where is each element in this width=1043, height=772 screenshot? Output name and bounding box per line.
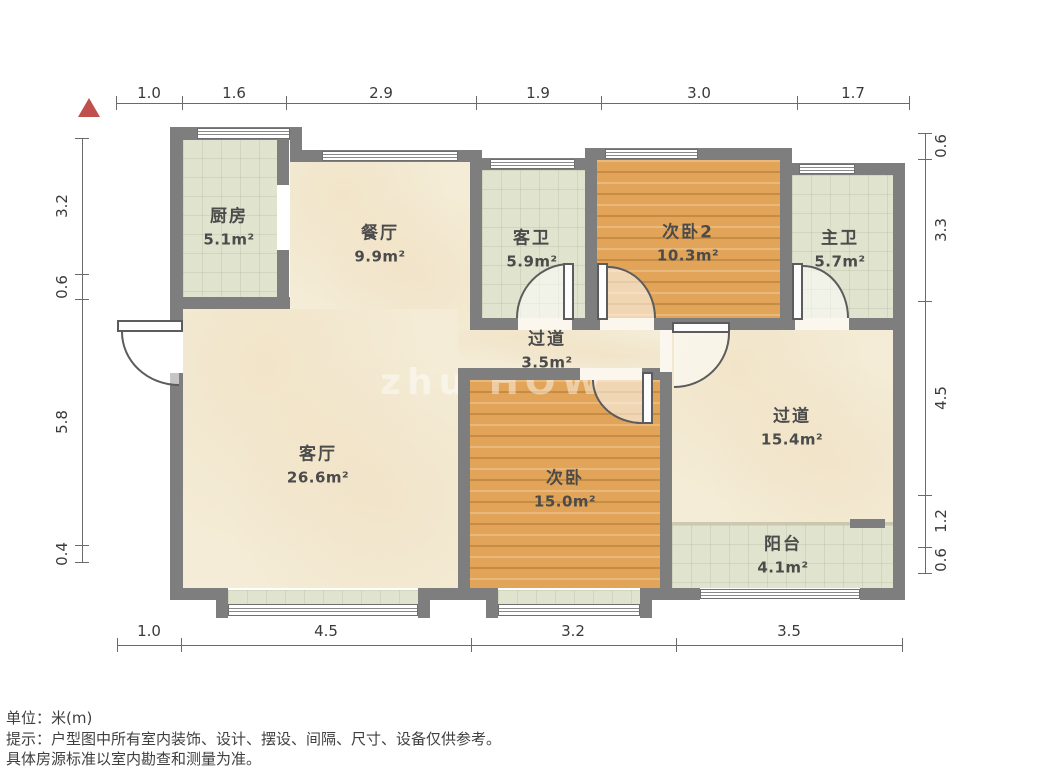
dim-label: 1.0	[137, 622, 161, 640]
master-bath-door	[792, 263, 803, 320]
master-bath-window	[799, 164, 855, 174]
room-name: 次卧2	[657, 223, 719, 244]
bay-window-stub	[418, 588, 430, 618]
dim-label: 1.7	[841, 84, 865, 102]
dim-label: 0.6	[53, 275, 71, 299]
room-name: 厨房	[203, 207, 254, 228]
room-label-bedroom: 次卧 15.0m²	[534, 469, 596, 512]
room-name: 次卧	[534, 469, 596, 490]
room-area: 4.1m²	[757, 559, 808, 578]
wall	[277, 139, 289, 185]
bedroom-door	[642, 372, 653, 424]
dim-label: 0.6	[932, 134, 950, 158]
dim-label: 4.5	[314, 622, 338, 640]
bedroom-2-door	[597, 263, 608, 320]
dim-tick	[918, 573, 932, 574]
dim-label: 3.0	[687, 84, 711, 102]
dining-window	[322, 151, 458, 161]
bay-window-stub	[640, 588, 652, 618]
bedroom-bay-window	[498, 604, 640, 616]
room-area: 5.1m²	[203, 231, 254, 250]
room-label-master-bath: 主卫 5.7m²	[814, 229, 865, 272]
wall	[585, 160, 597, 330]
dim-label: 0.6	[932, 548, 950, 572]
room-label-hallway-small: 过道 3.5m²	[521, 330, 572, 373]
dim-tick	[918, 133, 932, 134]
wall	[170, 297, 290, 309]
dim-tick	[117, 638, 118, 652]
dim-label: 1.0	[137, 84, 161, 102]
room-area: 15.0m²	[534, 493, 596, 512]
dim-label: 0.4	[53, 542, 71, 566]
dim-tick	[75, 138, 89, 139]
wall	[850, 519, 885, 528]
dim-tick	[476, 96, 477, 110]
wall	[470, 162, 482, 330]
room-label-kitchen: 厨房 5.1m²	[203, 207, 254, 250]
room-label-guest-bath: 客卫 5.9m²	[506, 229, 557, 272]
dim-tick	[797, 96, 798, 110]
dim-tick	[286, 96, 287, 110]
room-area: 5.7m²	[814, 253, 865, 272]
disclaimer-line-2: 具体房源标准以室内勘查和测量为准。	[6, 749, 501, 770]
wall	[277, 250, 289, 309]
room-label-dining: 餐厅 9.9m²	[354, 224, 405, 267]
room-area: 15.4m²	[761, 431, 823, 450]
dim-label: 3.3	[932, 218, 950, 242]
kitchen-window	[197, 128, 290, 139]
room-label-living-room: 客厅 26.6m²	[287, 445, 349, 488]
guest-bath-door	[563, 263, 574, 320]
wall	[849, 318, 905, 330]
unit-note: 单位：米(m)	[6, 708, 501, 729]
room-name: 客厅	[287, 445, 349, 466]
dim-line-right	[925, 133, 926, 573]
bay-window-stub	[486, 588, 498, 618]
bedroom-bay-sill	[498, 590, 640, 604]
dim-tick	[116, 96, 117, 110]
wall	[893, 163, 905, 600]
dim-tick	[75, 545, 89, 546]
hallway-door	[672, 322, 730, 333]
room-area: 5.9m²	[506, 253, 557, 272]
dim-label: 3.2	[561, 622, 585, 640]
balcony-window	[700, 589, 860, 599]
room-area: 26.6m²	[287, 469, 349, 488]
wall	[170, 588, 216, 600]
living-bay-sill	[228, 590, 418, 604]
entry-door-arc	[121, 332, 179, 386]
dim-tick	[676, 638, 677, 652]
dim-label: 3.5	[777, 622, 801, 640]
room-name: 客卫	[506, 229, 557, 250]
bedroom-2-window	[605, 149, 698, 159]
wall	[652, 588, 700, 600]
room-name: 主卫	[814, 229, 865, 250]
door-opening	[795, 318, 849, 330]
floor-plan: zhu HOW	[0, 0, 1043, 772]
dim-tick	[918, 301, 932, 302]
dim-tick	[182, 96, 183, 110]
room-name: 阳台	[757, 535, 808, 556]
dim-tick	[471, 638, 472, 652]
wall	[660, 372, 672, 600]
room-name: 过道	[761, 407, 823, 428]
wall	[170, 127, 183, 309]
dim-tick	[75, 562, 89, 563]
wall	[170, 373, 183, 600]
dim-label: 1.9	[526, 84, 550, 102]
dim-tick	[918, 159, 932, 160]
footer-notes: 单位：米(m) 提示：户型图中所有室内装饰、设计、摆设、间隔、尺寸、设备仅供参考…	[6, 708, 501, 770]
dim-line-left	[82, 138, 83, 562]
dim-label: 1.6	[222, 84, 246, 102]
door-opening	[580, 368, 642, 380]
dim-label: 4.5	[932, 386, 950, 410]
wall	[572, 318, 600, 330]
entry-door	[117, 320, 183, 332]
north-arrow-icon	[78, 98, 100, 117]
dim-tick	[75, 274, 89, 275]
door-opening	[660, 330, 672, 372]
dim-label: 5.8	[53, 410, 71, 434]
room-area: 9.9m²	[354, 248, 405, 267]
dim-tick	[181, 638, 182, 652]
wall	[780, 160, 792, 330]
dim-line-top	[116, 103, 909, 104]
room-area: 3.5m²	[521, 354, 572, 373]
dim-tick	[909, 96, 910, 110]
dim-tick	[601, 96, 602, 110]
wall	[470, 318, 518, 330]
disclaimer-line-1: 提示：户型图中所有室内装饰、设计、摆设、间隔、尺寸、设备仅供参考。	[6, 729, 501, 750]
dim-tick	[918, 495, 932, 496]
dim-tick	[918, 547, 932, 548]
wall	[860, 588, 905, 600]
room-area: 10.3m²	[657, 247, 719, 266]
bay-window-stub	[216, 588, 228, 618]
guest-bath-window	[490, 159, 575, 169]
room-label-hallway-large: 过道 15.4m²	[761, 407, 823, 450]
dim-label: 3.2	[53, 194, 71, 218]
room-name: 餐厅	[354, 224, 405, 245]
wall	[430, 588, 486, 600]
room-label-bedroom-2: 次卧2 10.3m²	[657, 223, 719, 266]
door-opening	[600, 318, 654, 330]
room-name: 过道	[521, 330, 572, 351]
dim-line-bottom	[117, 645, 902, 646]
dim-label: 1.2	[932, 509, 950, 533]
dim-tick	[75, 299, 89, 300]
wall	[458, 368, 470, 600]
room-label-balcony: 阳台 4.1m²	[757, 535, 808, 578]
dim-label: 2.9	[369, 84, 393, 102]
living-bay-window	[228, 604, 418, 616]
dim-tick	[902, 638, 903, 652]
